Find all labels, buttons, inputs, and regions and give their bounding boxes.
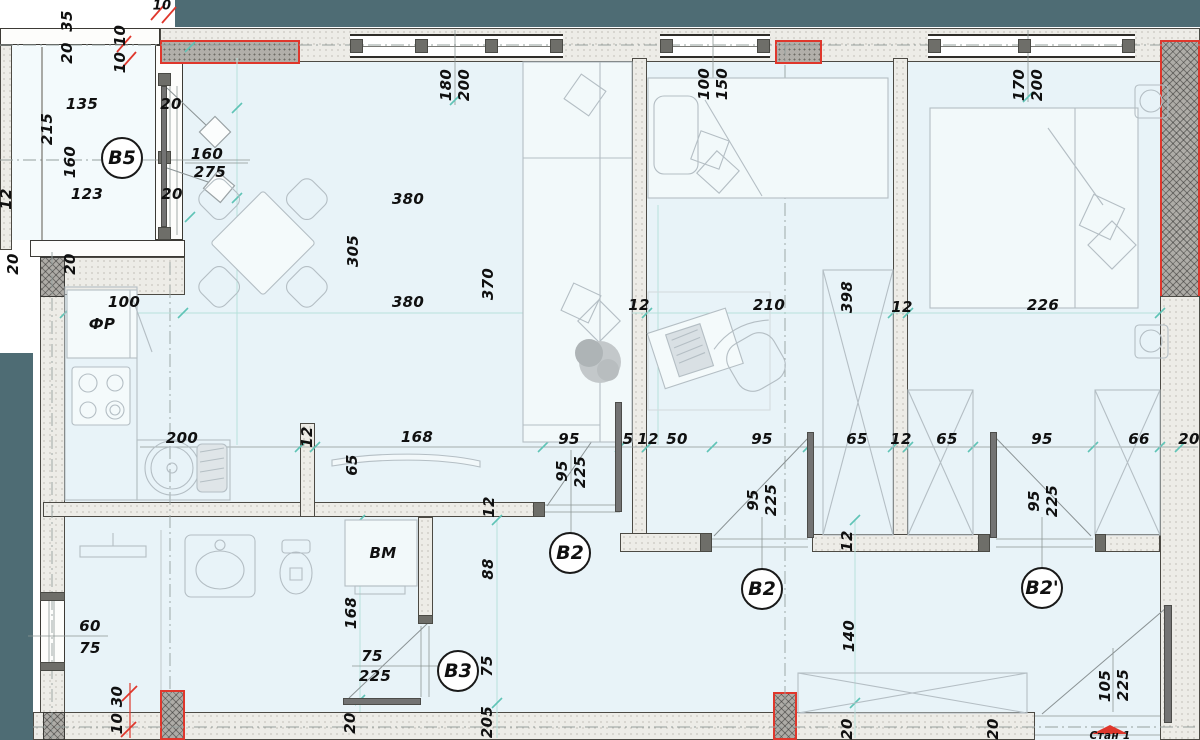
door-jamb (158, 227, 171, 240)
window-post (40, 592, 65, 601)
main-floor (183, 58, 1160, 713)
dim: 20 (58, 42, 76, 63)
dim: 210 (753, 296, 785, 314)
column-bottom-mid (773, 692, 797, 740)
dim-door: 225 (571, 456, 589, 488)
dim: 100 (108, 293, 140, 311)
dim: 200 (166, 429, 198, 447)
dim: 10 10 (111, 25, 129, 73)
dim: 168 (401, 428, 433, 446)
door-jamb (533, 502, 545, 517)
dim: 35 (58, 10, 76, 31)
entrance-label: Стан 1 (1090, 730, 1131, 740)
door-leaf-entrance (1164, 605, 1172, 723)
dim-door: 105 (1096, 670, 1114, 702)
door-circle-b2-living: B2 (549, 532, 591, 574)
door-jamb (1095, 534, 1106, 552)
dim: 12 (637, 430, 658, 448)
dim-door-b3: 225 (359, 667, 391, 685)
dim-window: 200 (1028, 69, 1046, 101)
dim: 380 (392, 190, 424, 208)
window-post (1018, 39, 1031, 53)
dim: 20 (161, 185, 182, 203)
dim-window: 150 (713, 68, 731, 100)
dim: 50 (666, 430, 687, 448)
dim: 88 (479, 558, 497, 579)
dim-door: 225 (1114, 669, 1132, 701)
dim: 10 30 (108, 686, 126, 734)
balcony-top-wall (0, 28, 160, 45)
wall-bathroom-corridor (418, 517, 433, 623)
dim: 66 (1128, 430, 1149, 448)
dim-door-b3: 75 (361, 647, 382, 665)
dim: 20 (341, 712, 359, 733)
dim-window: 180 (437, 69, 455, 101)
door-leaf-bathroom (343, 698, 421, 705)
dim: 215 (38, 113, 56, 145)
column-bottom-left-corner (43, 712, 65, 740)
window-living (350, 34, 563, 58)
dim-bath-window: 75 (79, 639, 100, 657)
dim-door-b5: 160 (191, 145, 223, 163)
dim: 20 (984, 718, 1002, 739)
label-washing-machine: BM (370, 544, 397, 562)
dim: 205 (478, 706, 496, 738)
dim: 12 (298, 426, 316, 447)
dim: 20 (4, 253, 22, 274)
dim: 123 (71, 185, 103, 203)
window-post (1122, 39, 1135, 53)
bath-window-gap (40, 597, 65, 667)
dim-window: 200 (455, 69, 473, 101)
dim: 65 (343, 454, 361, 475)
dim: 380 (392, 293, 424, 311)
dim: 12 (890, 430, 911, 448)
door-leaf-bedroom3 (990, 432, 997, 538)
dim: 65 (846, 430, 867, 448)
dim: 5 (623, 430, 634, 448)
window-post (757, 39, 770, 53)
dim: 135 (66, 95, 98, 113)
window-post (550, 39, 563, 53)
door-jamb (978, 534, 990, 552)
dim: 398 (838, 281, 856, 313)
column-bottom-left (160, 690, 185, 740)
window-post (415, 39, 428, 53)
corridor-wall-a (620, 533, 712, 552)
dim: 160 (61, 146, 79, 178)
balcony-slab (30, 240, 185, 257)
window-bedroom3 (928, 34, 1135, 58)
dim-door: 95 (744, 489, 762, 510)
dim: 10 (153, 0, 172, 14)
column-top (775, 40, 822, 64)
dim: 20 (1178, 430, 1199, 448)
dim-door-b5: 275 (194, 163, 226, 181)
dim: 20 (160, 95, 181, 113)
dim-door: 95 (1025, 490, 1043, 511)
dim-door: 95 (553, 460, 571, 481)
dim-bath-window: 60 (79, 617, 100, 635)
window-post (928, 39, 941, 53)
demolition-wall-segment (160, 40, 300, 64)
dim: 12 (0, 188, 15, 209)
door-leaf-living (615, 402, 622, 512)
dim: 226 (1027, 296, 1059, 314)
dim-door: 225 (1043, 485, 1061, 517)
window-post (485, 39, 498, 53)
exterior-band-left (0, 353, 33, 740)
door-jamb (158, 73, 171, 86)
dim: 20 (838, 718, 856, 739)
dim: 75 (478, 655, 496, 676)
dim-door: 225 (762, 484, 780, 516)
window-bedroom2 (660, 34, 770, 58)
dim-window: 170 (1010, 69, 1028, 101)
dim: 12 (891, 298, 912, 316)
dim: 370 (479, 268, 497, 300)
dim: 65 (936, 430, 957, 448)
door-circle-b2-bedroom3: B2' (1021, 567, 1063, 609)
door-jamb (700, 533, 712, 552)
dim: 95 (1031, 430, 1052, 448)
dim: 12 (480, 496, 498, 517)
floor-plan: B5 B2 B2 B2' B3 10 35 20 10 10 135 20 21… (0, 0, 1200, 740)
balcony-left-wall (0, 45, 12, 250)
label-fridge: ФР (89, 315, 115, 333)
dim: 95 (558, 430, 579, 448)
dim: 305 (344, 235, 362, 267)
door-circle-b3: B3 (437, 650, 479, 692)
wall-bedroom2-bedroom3 (893, 58, 908, 535)
window-post (350, 39, 363, 53)
dim-window: 100 (695, 68, 713, 100)
door-circle-b2-bedroom2: B2 (741, 568, 783, 610)
exterior-band-top (175, 0, 1200, 27)
door-jamb (418, 615, 433, 624)
dim: 12 (838, 530, 856, 551)
window-post (660, 39, 673, 53)
dim: 95 (751, 430, 772, 448)
wall-bathroom-top (43, 502, 545, 517)
door-circle-b5: B5 (101, 137, 143, 179)
party-wall-top (1160, 40, 1200, 298)
window-post (40, 662, 65, 671)
door-leaf-bedroom2 (807, 432, 814, 538)
dim: 12 (628, 296, 649, 314)
dim: 168 (342, 597, 360, 629)
dim: 20 (61, 253, 79, 274)
dim: 140 (840, 620, 858, 652)
